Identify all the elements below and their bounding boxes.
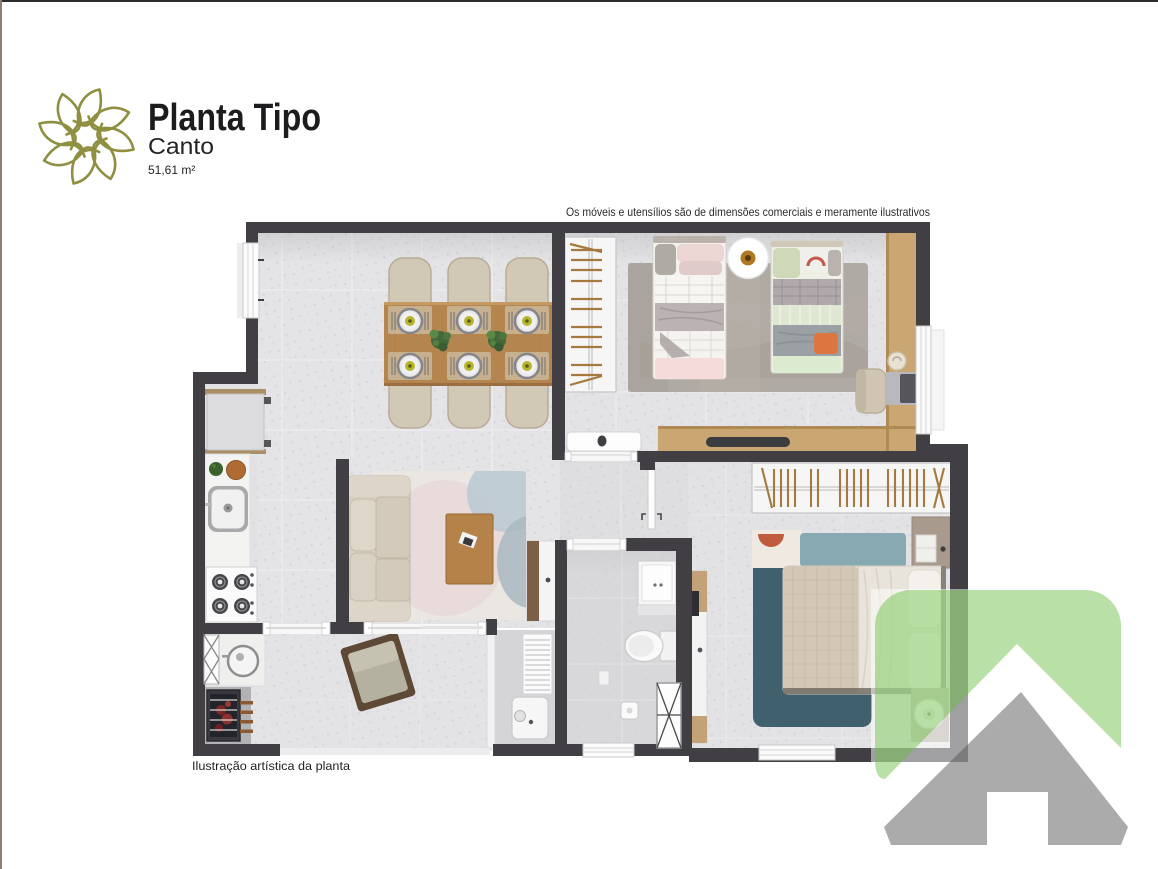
svg-text:Os móveis e utensílios são de: Os móveis e utensílios são de dimensões …	[566, 206, 930, 219]
svg-text:Ilustração artística da planta: Ilustração artística da planta	[192, 759, 350, 773]
svg-text:Canto: Canto	[148, 133, 214, 159]
svg-text:51,61 m²: 51,61 m²	[148, 163, 195, 177]
